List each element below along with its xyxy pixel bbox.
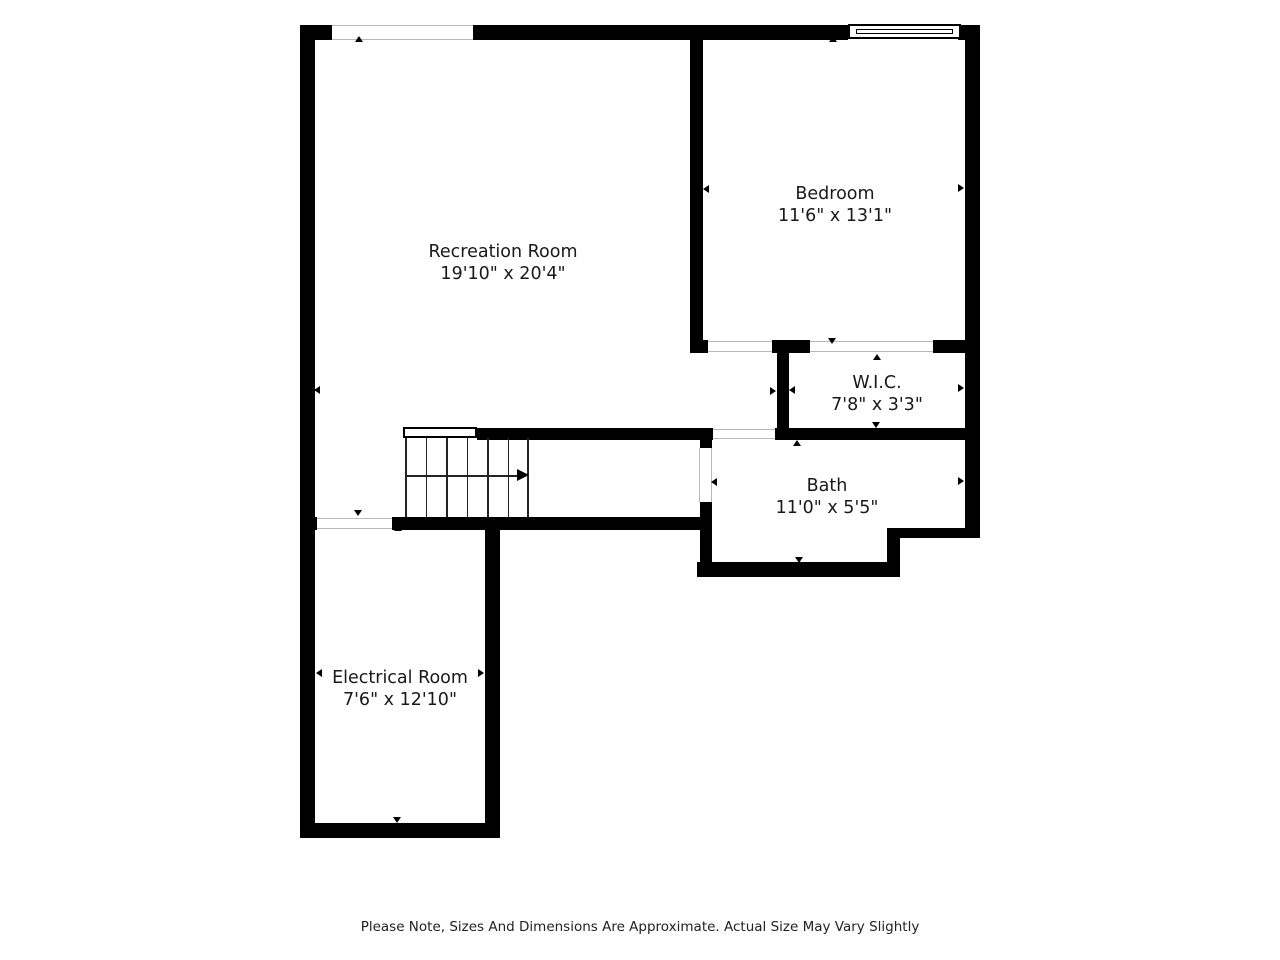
room-name: W.I.C. [831,372,923,394]
stair-direction-line [405,475,519,477]
wall-left-outer [300,25,315,838]
wall-top-mid [473,25,848,40]
dimension-arrow-down-icon [828,338,836,344]
window-symbol [848,24,961,39]
dimension-arrow-left-icon [789,386,795,394]
disclaimer-note: Please Note, Sizes And Dimensions Are Ap… [0,919,1280,935]
room-label-bedroom: Bedroom 11'6" x 13'1" [778,183,892,227]
opening-top-wall [332,25,473,40]
dimension-arrow-up-icon [355,36,363,42]
room-name: Electrical Room [332,667,468,689]
wall-rec-bottom-corner [300,517,317,530]
stair-direction-arrow-icon [517,469,529,481]
room-dimensions: 7'6" x 12'10" [332,689,468,711]
dimension-arrow-down-icon [393,817,401,823]
stair-tread [426,438,428,517]
dimension-arrow-right-icon [958,384,964,392]
wall-electrical-right [485,530,500,838]
room-dimensions: 11'6" x 13'1" [778,205,892,227]
room-name: Bedroom [778,183,892,205]
room-label-wic: W.I.C. 7'8" x 3'3" [831,372,923,416]
electrical-door-opening [317,518,392,529]
stair-tread [487,438,489,517]
dimension-arrow-up-icon [829,36,837,42]
room-dimensions: 7'8" x 3'3" [831,394,923,416]
dimension-arrow-right-icon [958,184,964,192]
window-glass-lines [856,29,953,34]
bedroom-door-opening [708,341,772,352]
dimension-arrow-left-icon [711,478,717,486]
staircase [405,438,528,517]
floor-plan: Recreation Room 19'10" x 20'4" Bedroom 1… [0,0,1280,960]
bath-top-opening [713,429,775,439]
room-dimensions: 11'0" x 5'5" [776,497,879,519]
dimension-arrow-left-icon [314,386,320,394]
dimension-arrow-right-icon [478,669,484,677]
bath-door-opening [699,448,712,502]
dimension-arrow-up-icon [873,354,881,360]
room-dimensions: 19'10" x 20'4" [429,263,578,285]
dimension-arrow-right-icon [958,477,964,485]
dimension-arrow-up-icon [394,525,402,531]
wall-right-outer [965,25,980,537]
wall-rec-bottom [392,517,712,530]
dimension-arrow-left-icon [703,185,709,193]
dimension-arrow-down-icon [872,422,880,428]
wall-bath-step-vertical [887,528,900,577]
dimension-arrow-down-icon [354,510,362,516]
dimension-arrow-right-icon [770,387,776,395]
dimension-arrow-down-icon [795,557,803,563]
room-label-recreation-room: Recreation Room 19'10" x 20'4" [429,241,578,285]
wall-bedroom-bottom-a [690,340,708,353]
stair-tread [446,438,448,517]
room-name: Recreation Room [429,241,578,263]
dimension-arrow-left-icon [316,669,322,677]
wall-wic-left [777,340,789,440]
room-label-bath: Bath 11'0" x 5'5" [776,475,879,519]
room-label-electrical-room: Electrical Room 7'6" x 12'10" [332,667,468,711]
stair-tread [405,438,407,517]
wall-bedroom-divider [690,25,703,353]
stair-tread [508,438,510,517]
dimension-arrow-up-icon [793,440,801,446]
wall-bath-step-horizontal [900,528,980,538]
wall-wic-bottom [775,428,980,440]
wall-bath-bottom [697,562,900,577]
stair-tread [467,438,469,517]
wall-bath-left-stub-upper [700,440,712,448]
wall-bedroom-bottom-c [933,340,980,353]
room-name: Bath [776,475,879,497]
wall-electrical-bottom [300,823,500,838]
stair-rail [403,427,477,438]
